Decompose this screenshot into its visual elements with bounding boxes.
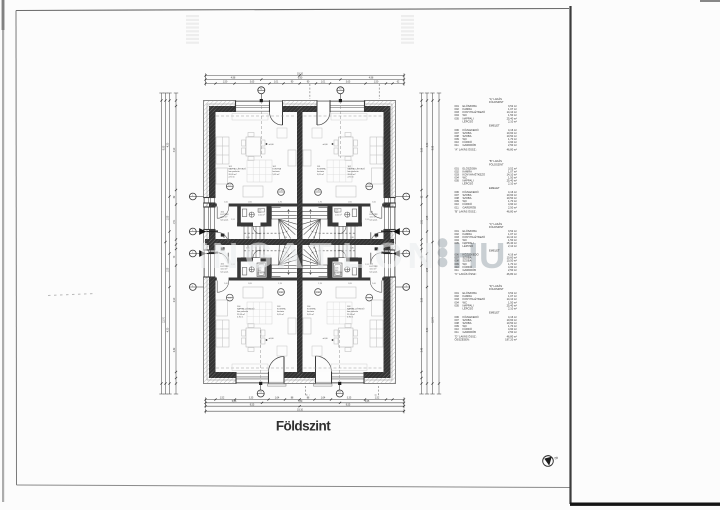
- svg-text:"B" LAKÁS ÖSSZ.:: "B" LAKÁS ÖSSZ.:: [455, 210, 478, 214]
- svg-text:2,05: 2,05: [248, 202, 252, 204]
- svg-text:2,10: 2,10: [368, 185, 371, 187]
- svg-text:5,05 m²: 5,05 m²: [273, 173, 280, 176]
- svg-text:ELŐTÉR: ELŐTÉR: [370, 213, 379, 216]
- svg-text:lam.park.: lam.park.: [221, 219, 230, 221]
- svg-text:2,49: 2,49: [422, 347, 424, 352]
- svg-text:1,55: 1,55: [168, 215, 170, 220]
- svg-text:3,90: 3,90: [422, 147, 424, 152]
- svg-text:1,55: 1,55: [168, 267, 170, 272]
- svg-text:25,95 m²: 25,95 m²: [347, 313, 355, 316]
- svg-text:1,51: 1,51: [365, 264, 369, 266]
- svg-text:2,90: 2,90: [174, 297, 176, 302]
- svg-text:2,10 m²: 2,10 m²: [508, 119, 517, 123]
- svg-text:1,76: 1,76: [318, 202, 322, 204]
- svg-text:1,51: 1,51: [174, 219, 176, 224]
- svg-text:2,70 m: 2,70 m: [348, 176, 354, 178]
- svg-text:1,51: 1,51: [365, 219, 369, 221]
- svg-text:FÖLDSZINT: FÖLDSZINT: [489, 225, 504, 229]
- svg-text:2,05: 2,05: [348, 202, 352, 204]
- svg-text:2,50 m²: 2,50 m²: [508, 205, 517, 209]
- svg-text:011: 011: [455, 268, 460, 272]
- svg-text:2,10: 2,10: [279, 190, 282, 192]
- svg-text:3,35: 3,35: [249, 398, 254, 400]
- svg-text:2,90: 2,90: [422, 297, 424, 302]
- svg-text:12,70: 12,70: [164, 316, 166, 322]
- svg-text:005: 005: [455, 179, 460, 183]
- svg-text:1,64: 1,64: [321, 398, 326, 400]
- svg-text:1,52: 1,52: [220, 398, 225, 400]
- svg-text:1,64: 1,64: [275, 398, 280, 400]
- svg-text:1,76: 1,76: [278, 202, 282, 204]
- svg-text:95: 95: [386, 195, 388, 197]
- svg-text:2,10 m²: 2,10 m²: [508, 182, 517, 186]
- svg-text:lam.parketta: lam.parketta: [237, 310, 249, 313]
- svg-text:ÖSSZESEN:: ÖSSZESEN:: [455, 337, 470, 341]
- svg-text:EMELET: EMELET: [489, 311, 500, 315]
- svg-text:005: 005: [455, 303, 460, 307]
- svg-text:26,05 m²: 26,05 m²: [229, 173, 237, 176]
- svg-text:KONYHA: KONYHA: [317, 168, 326, 171]
- svg-text:011: 011: [455, 143, 460, 147]
- svg-text:1,00: 1,00: [224, 283, 228, 285]
- svg-text:2,10: 2,10: [279, 292, 282, 294]
- svg-text:2,49: 2,49: [174, 347, 176, 352]
- svg-text:K1: K1: [260, 89, 262, 91]
- svg-text:3,65: 3,65: [250, 81, 255, 83]
- svg-text:95: 95: [386, 290, 388, 292]
- svg-text:4,30: 4,30: [168, 327, 170, 332]
- svg-text:Földszint: Földszint: [276, 419, 331, 434]
- svg-text:EMELET: EMELET: [489, 124, 500, 128]
- svg-text:I: I: [199, 235, 209, 276]
- svg-text:2,10: 2,10: [228, 297, 231, 299]
- svg-text:1,50: 1,50: [223, 81, 228, 83]
- svg-text:1: 1: [406, 195, 407, 197]
- svg-text:1,50 m²: 1,50 m²: [335, 214, 342, 217]
- svg-text:4,30: 4,30: [427, 327, 429, 332]
- svg-text:2,05: 2,05: [248, 283, 252, 285]
- svg-text:NAPPALI+ÉTKEZŐ: NAPPALI+ÉTKEZŐ: [348, 168, 366, 171]
- svg-text:1: 1: [192, 252, 193, 254]
- svg-text:12,70: 12,70: [433, 316, 435, 322]
- svg-text:G: G: [245, 235, 273, 276]
- svg-text:1,55: 1,55: [427, 215, 429, 220]
- svg-text:lam.parketta: lam.parketta: [348, 170, 360, 173]
- svg-text:187,20 m²: 187,20 m²: [505, 337, 517, 341]
- svg-text:lam.parketta: lam.parketta: [229, 170, 241, 173]
- svg-text:1,51: 1,51: [422, 219, 424, 224]
- svg-text:ELŐTÉR: ELŐTÉR: [221, 213, 230, 216]
- svg-text:KONYHA: KONYHA: [307, 308, 316, 311]
- svg-text:EMELET: EMELET: [489, 186, 500, 190]
- svg-text:N: N: [212, 235, 238, 276]
- svg-text:1: 1: [406, 285, 407, 287]
- svg-text:8,95: 8,95: [164, 145, 166, 150]
- svg-text:NAPPALI+ÉTKEZŐ: NAPPALI+ÉTKEZŐ: [229, 168, 247, 171]
- svg-text:KONYHA: KONYHA: [273, 168, 282, 171]
- svg-text:FÖLDSZINT: FÖLDSZINT: [489, 100, 504, 104]
- svg-text:K1: K1: [339, 392, 341, 394]
- svg-text:"A" LAKÁS ÖSSZ.:: "A" LAKÁS ÖSSZ.:: [455, 147, 478, 151]
- svg-text:4,98: 4,98: [231, 77, 236, 79]
- svg-text:FÖLDSZINT: FÖLDSZINT: [489, 287, 504, 291]
- svg-text:5,05 m²: 5,05 m²: [307, 313, 314, 316]
- svg-text:2,10: 2,10: [316, 190, 319, 192]
- svg-text:4,30: 4,30: [168, 142, 170, 147]
- svg-text:005: 005: [455, 241, 460, 245]
- svg-text:2,10: 2,10: [316, 292, 319, 294]
- svg-text:2,50 m²: 2,50 m²: [508, 143, 517, 147]
- svg-text:2,10: 2,10: [368, 297, 371, 299]
- svg-text:1,52: 1,52: [375, 398, 380, 400]
- svg-text:1,50 m²: 1,50 m²: [258, 214, 265, 217]
- svg-text:1,76: 1,76: [278, 283, 282, 285]
- svg-text:3,90: 3,90: [174, 147, 176, 152]
- svg-text:7,80: 7,80: [298, 401, 303, 403]
- svg-text:1,01: 1,01: [321, 81, 326, 83]
- svg-text:EMELET: EMELET: [489, 248, 500, 252]
- svg-text:46,80 m²: 46,80 m²: [507, 272, 518, 276]
- svg-text:2,10 m²: 2,10 m²: [508, 244, 517, 248]
- svg-text:±0,00: ±0,00: [269, 338, 275, 340]
- svg-text:5,05 m²: 5,05 m²: [277, 313, 284, 316]
- svg-text:±0,00: ±0,00: [323, 144, 329, 146]
- svg-text:2,50 m²: 2,50 m²: [508, 330, 517, 334]
- svg-text:±0,00: ±0,00: [269, 144, 275, 146]
- svg-text:8,95: 8,95: [433, 145, 435, 150]
- svg-text:011: 011: [455, 330, 460, 334]
- svg-text:2,10 m²: 2,10 m²: [508, 306, 517, 310]
- svg-text:2,50 m²: 2,50 m²: [508, 268, 517, 272]
- svg-text:3,10 m²: 3,10 m²: [221, 216, 228, 219]
- svg-text:19,10: 19,10: [297, 409, 303, 411]
- svg-text:±0,00: ±0,00: [323, 338, 329, 340]
- svg-text:26,05 m²: 26,05 m²: [348, 173, 356, 176]
- svg-text:4,98: 4,98: [369, 77, 374, 79]
- svg-text:25,95 m²: 25,95 m²: [237, 313, 245, 316]
- svg-text:6,90: 6,90: [298, 77, 303, 79]
- svg-text:3,65: 3,65: [346, 81, 351, 83]
- svg-text:9,55: 9,55: [250, 404, 255, 406]
- svg-text:1,50: 1,50: [374, 81, 379, 83]
- svg-text:lam.park.: lam.park.: [370, 219, 379, 221]
- svg-text:1: 1: [192, 285, 193, 287]
- svg-text:5,65: 5,65: [232, 401, 237, 403]
- svg-text:T: T: [310, 235, 332, 276]
- svg-text:1,00: 1,00: [372, 283, 376, 285]
- svg-text:95: 95: [213, 290, 215, 292]
- svg-text:A: A: [277, 235, 303, 276]
- svg-text:1: 1: [406, 230, 407, 232]
- svg-text:1,01: 1,01: [274, 81, 279, 83]
- svg-text:2,70 m: 2,70 m: [347, 316, 353, 318]
- svg-text:2,70 m: 2,70 m: [237, 316, 243, 318]
- svg-text:1,76: 1,76: [318, 283, 322, 285]
- svg-text:5,05 m²: 5,05 m²: [317, 173, 324, 176]
- svg-text:2,70 m: 2,70 m: [229, 176, 235, 178]
- svg-text:46,80 m²: 46,80 m²: [507, 147, 518, 151]
- svg-text:1,51: 1,51: [231, 219, 235, 221]
- svg-text:"C" LAKÁS ÖSSZ.:: "C" LAKÁS ÖSSZ.:: [455, 272, 478, 276]
- svg-text:5,65: 5,65: [365, 401, 370, 403]
- svg-text:1: 1: [192, 195, 193, 197]
- svg-text:005: 005: [455, 116, 460, 120]
- svg-text:O: O: [375, 235, 403, 276]
- svg-text:K1: K1: [260, 392, 262, 394]
- svg-text:3,35: 3,35: [347, 398, 352, 400]
- svg-text:L: L: [342, 235, 364, 276]
- svg-text:KONYHA: KONYHA: [277, 308, 286, 311]
- svg-text:1,00: 1,00: [372, 202, 376, 204]
- svg-text:95: 95: [213, 195, 215, 197]
- svg-text:lam.parketta: lam.parketta: [347, 310, 359, 313]
- svg-text:011: 011: [455, 205, 460, 209]
- svg-text:4,30: 4,30: [427, 142, 429, 147]
- svg-text:U: U: [479, 235, 505, 276]
- svg-text:2,10: 2,10: [228, 185, 231, 187]
- svg-text:K1: K1: [339, 89, 341, 91]
- svg-text:19,10: 19,10: [297, 73, 303, 75]
- svg-text:1: 1: [192, 230, 193, 232]
- svg-text:1,00: 1,00: [224, 202, 228, 204]
- svg-text:NAPPALI+ÉTKEZŐ: NAPPALI+ÉTKEZŐ: [237, 308, 255, 311]
- svg-text:2,05: 2,05: [348, 283, 352, 285]
- svg-text:46,80 m²: 46,80 m²: [507, 210, 518, 214]
- svg-text:NAPPALI+ÉTKEZŐ: NAPPALI+ÉTKEZŐ: [347, 308, 365, 311]
- svg-text:9,55: 9,55: [346, 404, 351, 406]
- svg-text:N: N: [408, 235, 434, 276]
- svg-text:3,10 m²: 3,10 m²: [370, 216, 377, 219]
- svg-text:FÖLDSZINT: FÖLDSZINT: [489, 162, 504, 166]
